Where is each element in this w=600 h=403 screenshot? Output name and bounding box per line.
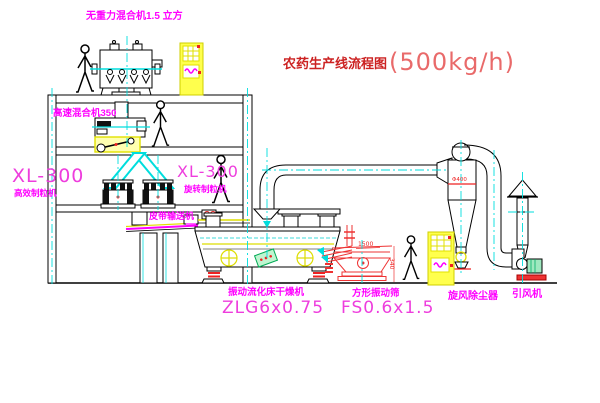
label-cyclone: 旋风除尘器: [448, 292, 498, 302]
label-dryer-name: 振动流化床干燥机: [228, 288, 304, 298]
label-fan: 引风机: [512, 290, 542, 300]
spring-support: [202, 267, 329, 283]
title-text: 农药生产线流程图: [283, 53, 387, 72]
label-gravity-free-mixer: 无重力混合机1.5 立方: [86, 12, 183, 22]
label-granulator-left-name: 高效制粒机: [14, 189, 57, 198]
fluid-bed-dryer: [195, 209, 340, 283]
diagram-title: 农药生产线流程图 (500kg/h): [283, 48, 515, 76]
label-dryer-model: ZLG6x0.75: [222, 300, 324, 317]
control-cabinet-2: [428, 232, 454, 285]
dim-sieve-height: 340: [388, 258, 394, 269]
induced-draft-fan: [512, 249, 546, 280]
dim-cyclone-dia: Φ400: [452, 178, 467, 184]
label-sieve-model: FS0.6x1.5: [341, 300, 434, 317]
label-belt-conveyor: 皮带输送机: [149, 212, 194, 221]
belt-conveyor: [126, 212, 198, 283]
label-granulator-left-model: XL-300: [12, 167, 84, 186]
gravity-free-mixer: [90, 41, 162, 96]
label-granulator-mid-name: 旋转制粒机: [184, 185, 227, 194]
title-capacity: (500kg/h): [389, 48, 515, 76]
label-granulator-mid-model: XL-300: [177, 164, 239, 180]
person-figure: [403, 236, 420, 279]
dim-sieve-length: 1500: [358, 242, 373, 248]
label-high-speed-mixer: 高速混合机350: [53, 109, 116, 119]
flow-diagram: 农药生产线流程图 (500kg/h) 无重力混合机1.5 立方 高速混合机350…: [0, 0, 600, 403]
control-cabinet-1: [180, 43, 203, 95]
person-figure: [152, 101, 169, 146]
